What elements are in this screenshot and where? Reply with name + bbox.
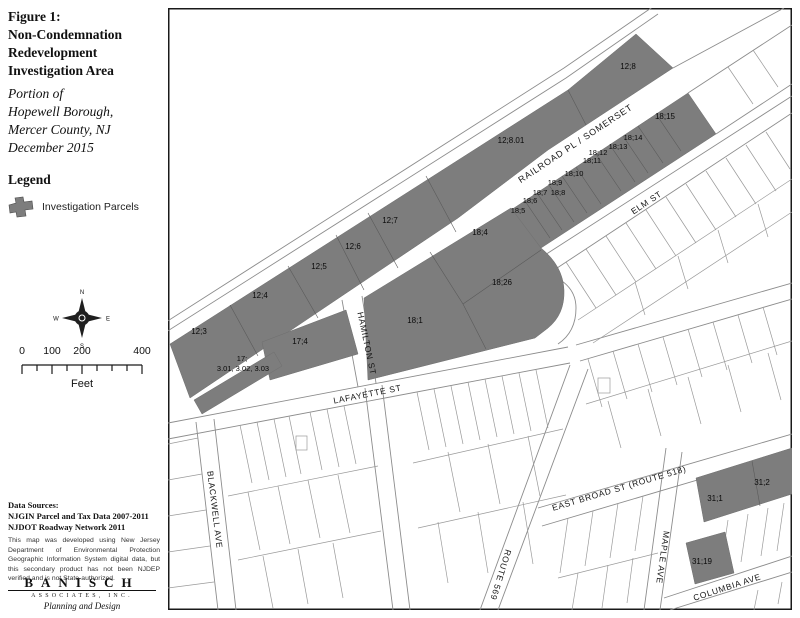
parcel-label-18-1: 18;1	[407, 316, 423, 325]
parcel-label-18-6: 18;6	[523, 196, 538, 205]
parcel-label-18-8: 18;8	[551, 188, 566, 197]
map-svg: 12;3 12;4 12;5 12;6 12;7 12;8.01 12;8 17…	[168, 8, 792, 610]
figure-title: Figure 1: Non-Condemnation Redevelopment…	[8, 8, 166, 80]
subtitle-line: December 2015	[8, 139, 166, 157]
parcel-label-18-15: 18;15	[655, 112, 676, 121]
parcel-label-12-5: 12;5	[311, 262, 327, 271]
parcel-label-18-13: 18;13	[609, 142, 628, 151]
figure-page: Figure 1: Non-Condemnation Redevelopment…	[0, 0, 800, 618]
scale-tick-label-400: 400	[133, 345, 151, 357]
parcel-label-12-7: 12;7	[382, 216, 398, 225]
scale-bar: 0 100 200 400 Feet	[4, 342, 164, 392]
legend-heading: Legend	[8, 172, 51, 188]
scale-unit-label: Feet	[71, 378, 93, 390]
subtitle-line: Hopewell Borough,	[8, 103, 166, 121]
parcel-label-12-8: 12;8	[620, 62, 636, 71]
compass-rose-icon: N E S W	[50, 286, 114, 350]
compass-w-label: W	[53, 317, 59, 323]
parcel-label-18-9: 18;9	[548, 178, 563, 187]
legend-item-investigation-parcels: Investigation Parcels	[8, 196, 139, 218]
data-source-line: NJGIN Parcel and Tax Data 2007-2011	[8, 511, 160, 522]
figure-subtitle: Portion of Hopewell Borough, Mercer Coun…	[8, 85, 166, 157]
parcel-label-12-6: 12;6	[345, 242, 361, 251]
data-sources: Data Sources: NJGIN Parcel and Tax Data …	[8, 500, 160, 533]
subtitle-line: Portion of	[8, 85, 166, 103]
title-line: Figure 1:	[8, 8, 166, 26]
legend-item-label: Investigation Parcels	[42, 201, 139, 213]
scale-tick-label-200: 200	[73, 345, 91, 357]
title-line: Redevelopment	[8, 44, 166, 62]
parcel-label-12-8-01: 12;8.01	[498, 136, 525, 145]
scale-bar-line	[22, 365, 142, 374]
parcel-label-31-1: 31;1	[707, 494, 723, 503]
parcel-label-18-7: 18;7	[533, 188, 548, 197]
parcel-label-18-10: 18;10	[565, 169, 584, 178]
banisch-logo: BANISCH ASSOCIATES, INC. Planning and De…	[8, 576, 156, 612]
logo-name: BANISCH	[8, 576, 156, 591]
parcel-label-17-lots: 3.01, 3.02, 3.03	[217, 364, 269, 373]
title-line: Investigation Area	[8, 62, 166, 80]
parcel-label-12-3: 12;3	[191, 327, 207, 336]
data-sources-heading: Data Sources:	[8, 500, 160, 511]
parcel-label-18-12: 18;12	[589, 148, 608, 157]
parcel-label-17: 17;	[237, 354, 247, 363]
map-frame: 12;3 12;4 12;5 12;6 12;7 12;8.01 12;8 17…	[168, 8, 792, 610]
parcel-label-17-4: 17;4	[292, 337, 308, 346]
parcel-label-31-19: 31;19	[692, 557, 713, 566]
compass-n-label: N	[80, 290, 84, 296]
parcel-label-18-11: 18;11	[583, 156, 601, 165]
parcel-label-18-14: 18;14	[624, 133, 643, 142]
scale-tick-label-100: 100	[43, 345, 61, 357]
scale-tick-label-0: 0	[19, 345, 25, 357]
parcel-swatch-icon	[8, 196, 34, 218]
parcel-label-31-2: 31;2	[754, 478, 770, 487]
logo-tagline: Planning and Design	[8, 601, 156, 612]
subtitle-line: Mercer County, NJ	[8, 121, 166, 139]
parcel-label-18-4: 18;4	[472, 228, 488, 237]
parcel-label-18-5: 18;5	[511, 206, 526, 215]
logo-subline: ASSOCIATES, INC.	[8, 592, 156, 600]
compass-e-label: E	[106, 317, 110, 323]
parcel-label-18-26: 18;26	[492, 278, 513, 287]
parcel-label-12-4: 12;4	[252, 291, 268, 300]
title-line: Non-Condemnation	[8, 26, 166, 44]
data-source-line: NJDOT Roadway Network 2011	[8, 522, 160, 533]
sidebar: Figure 1: Non-Condemnation Redevelopment…	[0, 0, 168, 618]
